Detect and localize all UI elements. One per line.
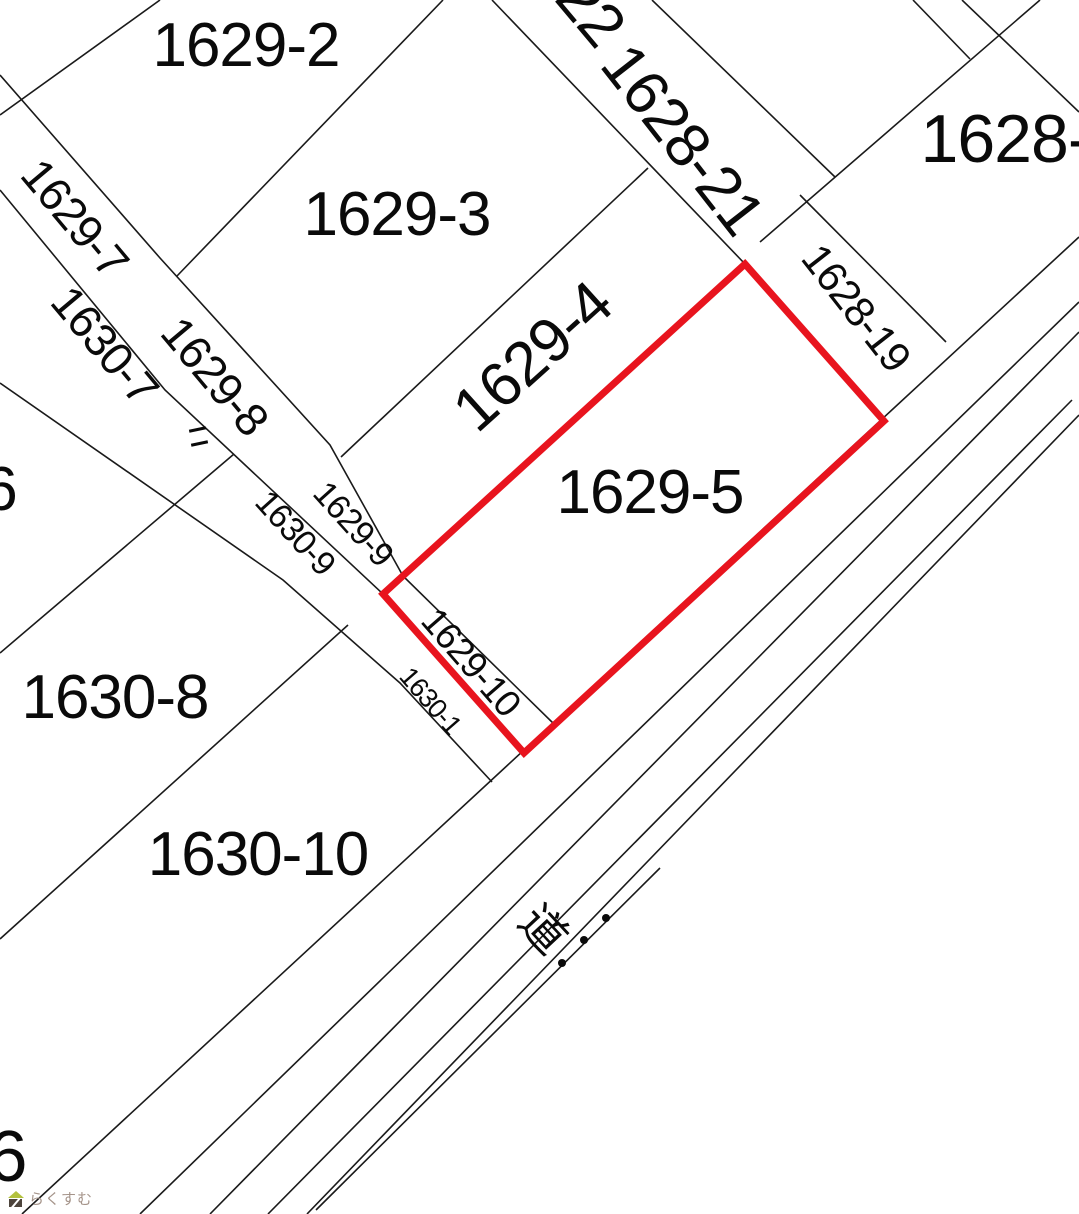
road-continuation-dot (580, 936, 588, 944)
parcel-label-1630-8: 1630-8 (21, 667, 208, 729)
parcel-label-1630-10: 1630-10 (148, 824, 369, 886)
parcel-label-bottom-edge-partial: 6 (0, 1121, 27, 1193)
parcel-label-left-edge-partial: 6 (0, 459, 17, 521)
house-body-icon (9, 1199, 22, 1207)
house-icon (8, 1191, 24, 1207)
boundary-line (913, 0, 970, 59)
road-edge-line (140, 302, 1079, 1214)
road-continuation-dot (602, 914, 610, 922)
path-strip-line (0, 190, 383, 594)
road-edge-line (307, 415, 1079, 1214)
parcel-label-1629-2: 1629-2 (152, 15, 339, 77)
boundary-line (0, 0, 160, 115)
watermark: らくすむ (8, 1188, 93, 1209)
boundary-line (0, 454, 234, 653)
watermark-text: らくすむ (29, 1188, 93, 1209)
parcel-label-1628-partial: 1628- (921, 105, 1079, 173)
parcel-boundary-lines (0, 0, 1079, 1214)
road-continuation-dot (558, 959, 566, 967)
house-roof-icon (8, 1191, 24, 1198)
parcel-label-1629-3: 1629-3 (303, 184, 490, 246)
parcel-label-1629-5: 1629-5 (556, 462, 743, 524)
cadastral-map-canvas: 1629-2 1629-3 1629-4 1629-5 1628- 1628-2… (0, 0, 1079, 1214)
